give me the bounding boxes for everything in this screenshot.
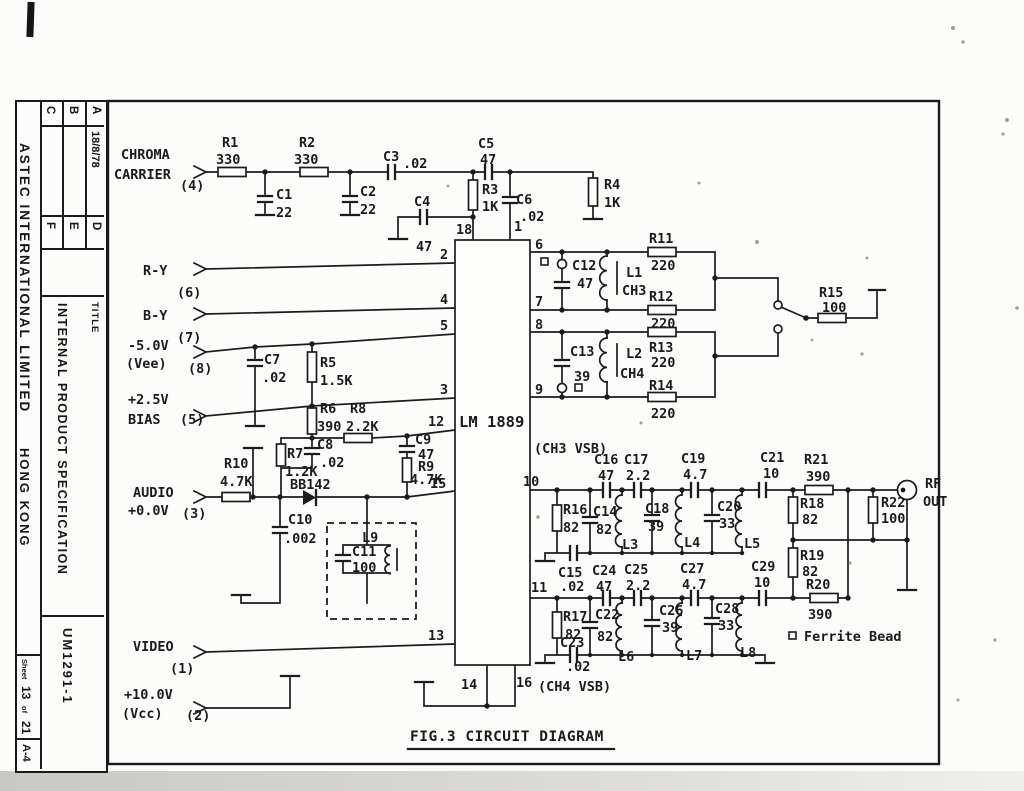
schematic-canvas: CHROMA CARRIER (4) R-Y (6) B-Y (7) -5.0V… xyxy=(0,0,1024,791)
label-rf-out2: OUT xyxy=(923,494,947,510)
label-r22: R22 xyxy=(881,495,905,511)
label-r13: R13 xyxy=(649,340,673,356)
value-c22: 82 xyxy=(597,629,613,645)
label-c7: C7 xyxy=(264,352,280,368)
value-r22: 100 xyxy=(881,511,905,527)
label-c13: C13 xyxy=(570,344,594,360)
input-audio-pin: (3) xyxy=(182,506,206,522)
value-c20: 33 xyxy=(719,516,735,532)
label-c8: C8 xyxy=(317,437,333,453)
switch-contact-ch4[interactable] xyxy=(774,325,782,333)
label-c23: C23 xyxy=(560,635,584,651)
label-c10: C10 xyxy=(288,512,312,528)
input-vee2: (Vee) xyxy=(126,356,167,372)
label-r14: R14 xyxy=(649,378,673,394)
label-c16: C16 xyxy=(594,452,618,468)
value-r6: 390 xyxy=(317,419,341,435)
value-r12: 220 xyxy=(651,316,675,332)
value-c11: 100 xyxy=(352,560,376,576)
value-c14: 82 xyxy=(596,522,612,538)
label-l2: L2 xyxy=(626,346,642,362)
pin-16: 16 xyxy=(516,675,532,691)
pin-13: 13 xyxy=(428,628,444,644)
label-r3: R3 xyxy=(482,182,498,198)
value-r18: 82 xyxy=(802,512,818,528)
value-c8: .02 xyxy=(320,455,344,471)
input-chroma-pin: (4) xyxy=(180,178,204,194)
label-r17: R17 xyxy=(563,609,587,625)
label-c9: C9 xyxy=(415,432,431,448)
label-r19: R19 xyxy=(800,548,824,564)
value-r3: 1K xyxy=(482,199,499,215)
value-c19: 4.7 xyxy=(683,467,707,483)
value-r9: 4.7K xyxy=(410,472,443,488)
pin-6: 6 xyxy=(535,237,543,253)
label-l5: L5 xyxy=(744,536,760,552)
label-r1: R1 xyxy=(222,135,238,151)
label-c3: C3 xyxy=(383,149,399,165)
input-by-pin: (7) xyxy=(177,330,201,346)
value-c2: 22 xyxy=(360,202,376,218)
label-l6: L6 xyxy=(618,649,634,665)
input-vcc2: (Vcc) xyxy=(122,706,163,722)
figure-caption: FIG.3 CIRCUIT DIAGRAM xyxy=(410,729,604,745)
label-c14: C14 xyxy=(593,504,617,520)
switch-contact-ch3[interactable] xyxy=(774,301,782,309)
pin-18: 18 xyxy=(456,222,472,238)
label-r10: R10 xyxy=(224,456,248,472)
input-audio2: +0.0V xyxy=(128,503,169,519)
input-vcc: +10.0V xyxy=(124,687,173,703)
input-audio: AUDIO xyxy=(133,485,174,501)
value-r8: 2.2K xyxy=(346,419,379,435)
value-r14: 220 xyxy=(651,406,675,422)
value-c16: 47 xyxy=(598,468,614,484)
value-r1: 330 xyxy=(216,152,240,168)
ferrite-bead-note: Ferrite Bead xyxy=(804,629,902,645)
label-r5: R5 xyxy=(320,355,336,371)
label-c28: C28 xyxy=(715,601,739,617)
value-c27: 4.7 xyxy=(682,577,706,593)
label-r18: R18 xyxy=(800,496,824,512)
value-l1: CH3 xyxy=(622,283,646,299)
value-c12: 47 xyxy=(577,276,593,292)
input-bias: +2.5V xyxy=(128,392,169,408)
label-c24: C24 xyxy=(592,563,616,579)
pin-3: 3 xyxy=(440,382,448,398)
label-l4: L4 xyxy=(684,535,700,551)
ferrite-bead-icon xyxy=(575,384,582,391)
label-c5: C5 xyxy=(478,136,494,152)
label-c2: C2 xyxy=(360,184,376,200)
value-c23: .02 xyxy=(566,659,590,675)
value-c4: 47 xyxy=(416,239,432,255)
value-l2: CH4 xyxy=(620,366,644,382)
value-c6: .02 xyxy=(520,209,544,225)
switch-pivot xyxy=(803,315,809,321)
input-vee: -5.0V xyxy=(128,338,169,354)
ic-lm1889-body xyxy=(455,240,530,665)
note-ch4-vsb: (CH4 VSB) xyxy=(538,679,611,695)
input-vcc-pin: (2) xyxy=(186,708,210,724)
label-r11: R11 xyxy=(649,231,673,247)
value-r11: 220 xyxy=(651,258,675,274)
ferrite-bead-icon xyxy=(541,258,548,265)
value-r21: 390 xyxy=(806,469,830,485)
input-bias-pin: (5) xyxy=(180,412,204,428)
label-r6: R6 xyxy=(320,401,336,417)
value-r16: 82 xyxy=(563,520,579,536)
value-r2: 330 xyxy=(294,152,318,168)
value-c3: .02 xyxy=(403,156,427,172)
ic-label: LM 1889 xyxy=(459,413,524,431)
label-r7: R7 xyxy=(287,446,303,462)
value-r4: 1K xyxy=(604,195,621,211)
label-c6: C6 xyxy=(516,192,532,208)
label-l1: L1 xyxy=(626,265,642,281)
label-l8: L8 xyxy=(740,645,756,661)
value-c25: 2.2 xyxy=(626,578,650,594)
label-c18: C18 xyxy=(645,501,669,517)
pin-12: 12 xyxy=(428,414,444,430)
label-c29: C29 xyxy=(751,559,775,575)
scanned-schematic-page: C B A 18/8/78 F E D ASTEC INTERNATIONAL … xyxy=(0,0,1024,791)
input-vee-pin: (8) xyxy=(188,361,212,377)
trimmer-icon xyxy=(558,384,567,393)
value-c26: 39 xyxy=(662,620,678,636)
value-c13: 39 xyxy=(574,369,590,385)
label-d1: BB142 xyxy=(290,477,331,493)
value-r15: 100 xyxy=(822,300,846,316)
label-c1: C1 xyxy=(276,187,292,203)
value-c5: 47 xyxy=(480,152,496,168)
label-r2: R2 xyxy=(299,135,315,151)
input-arrows xyxy=(194,166,206,714)
label-c4: C4 xyxy=(414,194,430,210)
label-r16: R16 xyxy=(563,502,587,518)
label-r4: R4 xyxy=(604,177,620,193)
label-c25: C25 xyxy=(624,562,648,578)
value-r10: 4.7K xyxy=(220,474,253,490)
label-r8: R8 xyxy=(350,401,366,417)
pin-2: 2 xyxy=(440,247,448,263)
label-c22: C22 xyxy=(595,607,619,623)
input-chroma: CHROMA xyxy=(121,147,170,163)
value-c18: 39 xyxy=(648,519,664,535)
ferrite-bead-icon xyxy=(789,632,796,639)
pin-11: 11 xyxy=(531,580,547,596)
label-r20: R20 xyxy=(806,577,830,593)
value-c7: .02 xyxy=(262,370,286,386)
trimmer-icon xyxy=(558,260,567,269)
value-c17: 2.2 xyxy=(626,468,650,484)
pin-5: 5 xyxy=(440,318,448,334)
value-r13: 220 xyxy=(651,355,675,371)
input-chroma2: CARRIER xyxy=(114,167,172,183)
label-c12: C12 xyxy=(572,258,596,274)
label-r21: R21 xyxy=(804,452,828,468)
label-r12: R12 xyxy=(649,289,673,305)
label-c26: C26 xyxy=(659,603,683,619)
input-bias2: BIAS xyxy=(128,412,161,428)
label-c17: C17 xyxy=(624,452,648,468)
label-l7: L7 xyxy=(686,648,702,664)
input-ry: R-Y xyxy=(143,263,168,279)
input-ry-pin: (6) xyxy=(177,285,201,301)
input-video: VIDEO xyxy=(133,639,174,655)
label-c27: C27 xyxy=(680,561,704,577)
value-c28: 33 xyxy=(718,618,734,634)
label-c11: C11 xyxy=(352,544,376,560)
input-video-pin: (1) xyxy=(170,661,194,677)
label-c21: C21 xyxy=(760,450,784,466)
label-rf-out: RF xyxy=(925,476,941,492)
value-c24: 47 xyxy=(596,579,612,595)
pin-10: 10 xyxy=(523,474,539,490)
value-c29: 10 xyxy=(754,575,770,591)
pin-9: 9 xyxy=(535,382,543,398)
label-c19: C19 xyxy=(681,451,705,467)
value-c1: 22 xyxy=(276,205,292,221)
value-c10: .002 xyxy=(284,531,317,547)
pin-4: 4 xyxy=(440,292,448,308)
value-c15: .02 xyxy=(560,579,584,595)
pin-8: 8 xyxy=(535,317,543,333)
value-c21: 10 xyxy=(763,466,779,482)
pin-14: 14 xyxy=(461,677,477,693)
rf-connector-pin xyxy=(901,488,906,493)
label-r15: R15 xyxy=(819,285,843,301)
label-c20: C20 xyxy=(717,499,741,515)
value-r5: 1.5K xyxy=(320,373,353,389)
value-r20: 390 xyxy=(808,607,832,623)
resistors xyxy=(218,168,878,639)
label-l3: L3 xyxy=(622,537,638,553)
pin-7: 7 xyxy=(535,294,543,310)
input-by: B-Y xyxy=(143,308,168,324)
